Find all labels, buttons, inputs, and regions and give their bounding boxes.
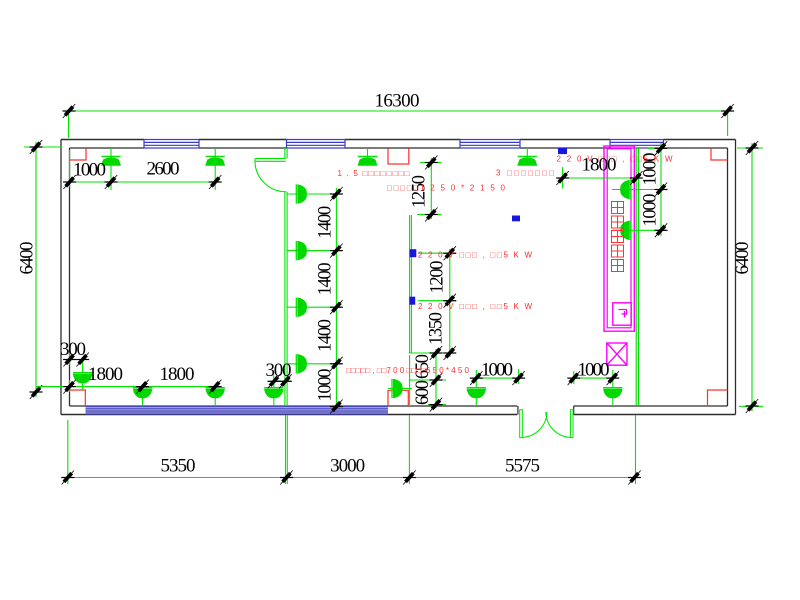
svg-text:1350: 1350 (427, 312, 447, 345)
svg-text:1800: 1800 (88, 364, 123, 385)
svg-text:16300: 16300 (375, 91, 420, 112)
svg-text:1000: 1000 (316, 369, 336, 402)
svg-text:2 2 0 V □□□ , □□5 K W: 2 2 0 V □□□ , □□5 K W (418, 251, 532, 260)
svg-text:1000: 1000 (641, 194, 661, 227)
svg-text:1400: 1400 (316, 206, 336, 239)
svg-text:1000: 1000 (578, 360, 610, 381)
svg-text:1000: 1000 (73, 160, 106, 181)
svg-text:2600: 2600 (147, 159, 180, 180)
svg-text:1 . 5 □□□□□□□□: 1 . 5 □□□□□□□□ (338, 169, 410, 178)
svg-text:3000: 3000 (330, 456, 365, 477)
svg-text:1200: 1200 (428, 261, 448, 294)
svg-text:3 □□□□□□□: 3 □□□□□□□ (496, 169, 554, 178)
svg-text:1400: 1400 (316, 319, 336, 352)
svg-text:□□□□□1 2 5 0 * 2 1 5 0: □□□□□1 2 5 0 * 2 1 5 0 (387, 184, 506, 193)
svg-text:6400: 6400 (18, 242, 38, 275)
svg-text:1000: 1000 (481, 360, 513, 381)
svg-text:1800: 1800 (160, 364, 195, 385)
svg-text:600: 600 (413, 380, 433, 405)
svg-text:□□□□□ , □□7 0 0 □□□□6 5 0 * 4: □□□□□ , □□7 0 0 □□□□6 5 0 * 4 5 0 (346, 366, 470, 375)
svg-text:6400: 6400 (733, 242, 753, 275)
svg-text:300: 300 (60, 339, 86, 360)
svg-text:2 2 0 V □□□ , □□5 K W: 2 2 0 V □□□ , □□5 K W (557, 155, 673, 164)
svg-text:1400: 1400 (316, 262, 336, 295)
svg-text:5575: 5575 (505, 456, 540, 477)
svg-text:2 2 0 V □□□ , □□5 K W: 2 2 0 V □□□ , □□5 K W (418, 302, 532, 311)
svg-text:5350: 5350 (161, 456, 196, 477)
svg-text:300: 300 (266, 360, 292, 381)
